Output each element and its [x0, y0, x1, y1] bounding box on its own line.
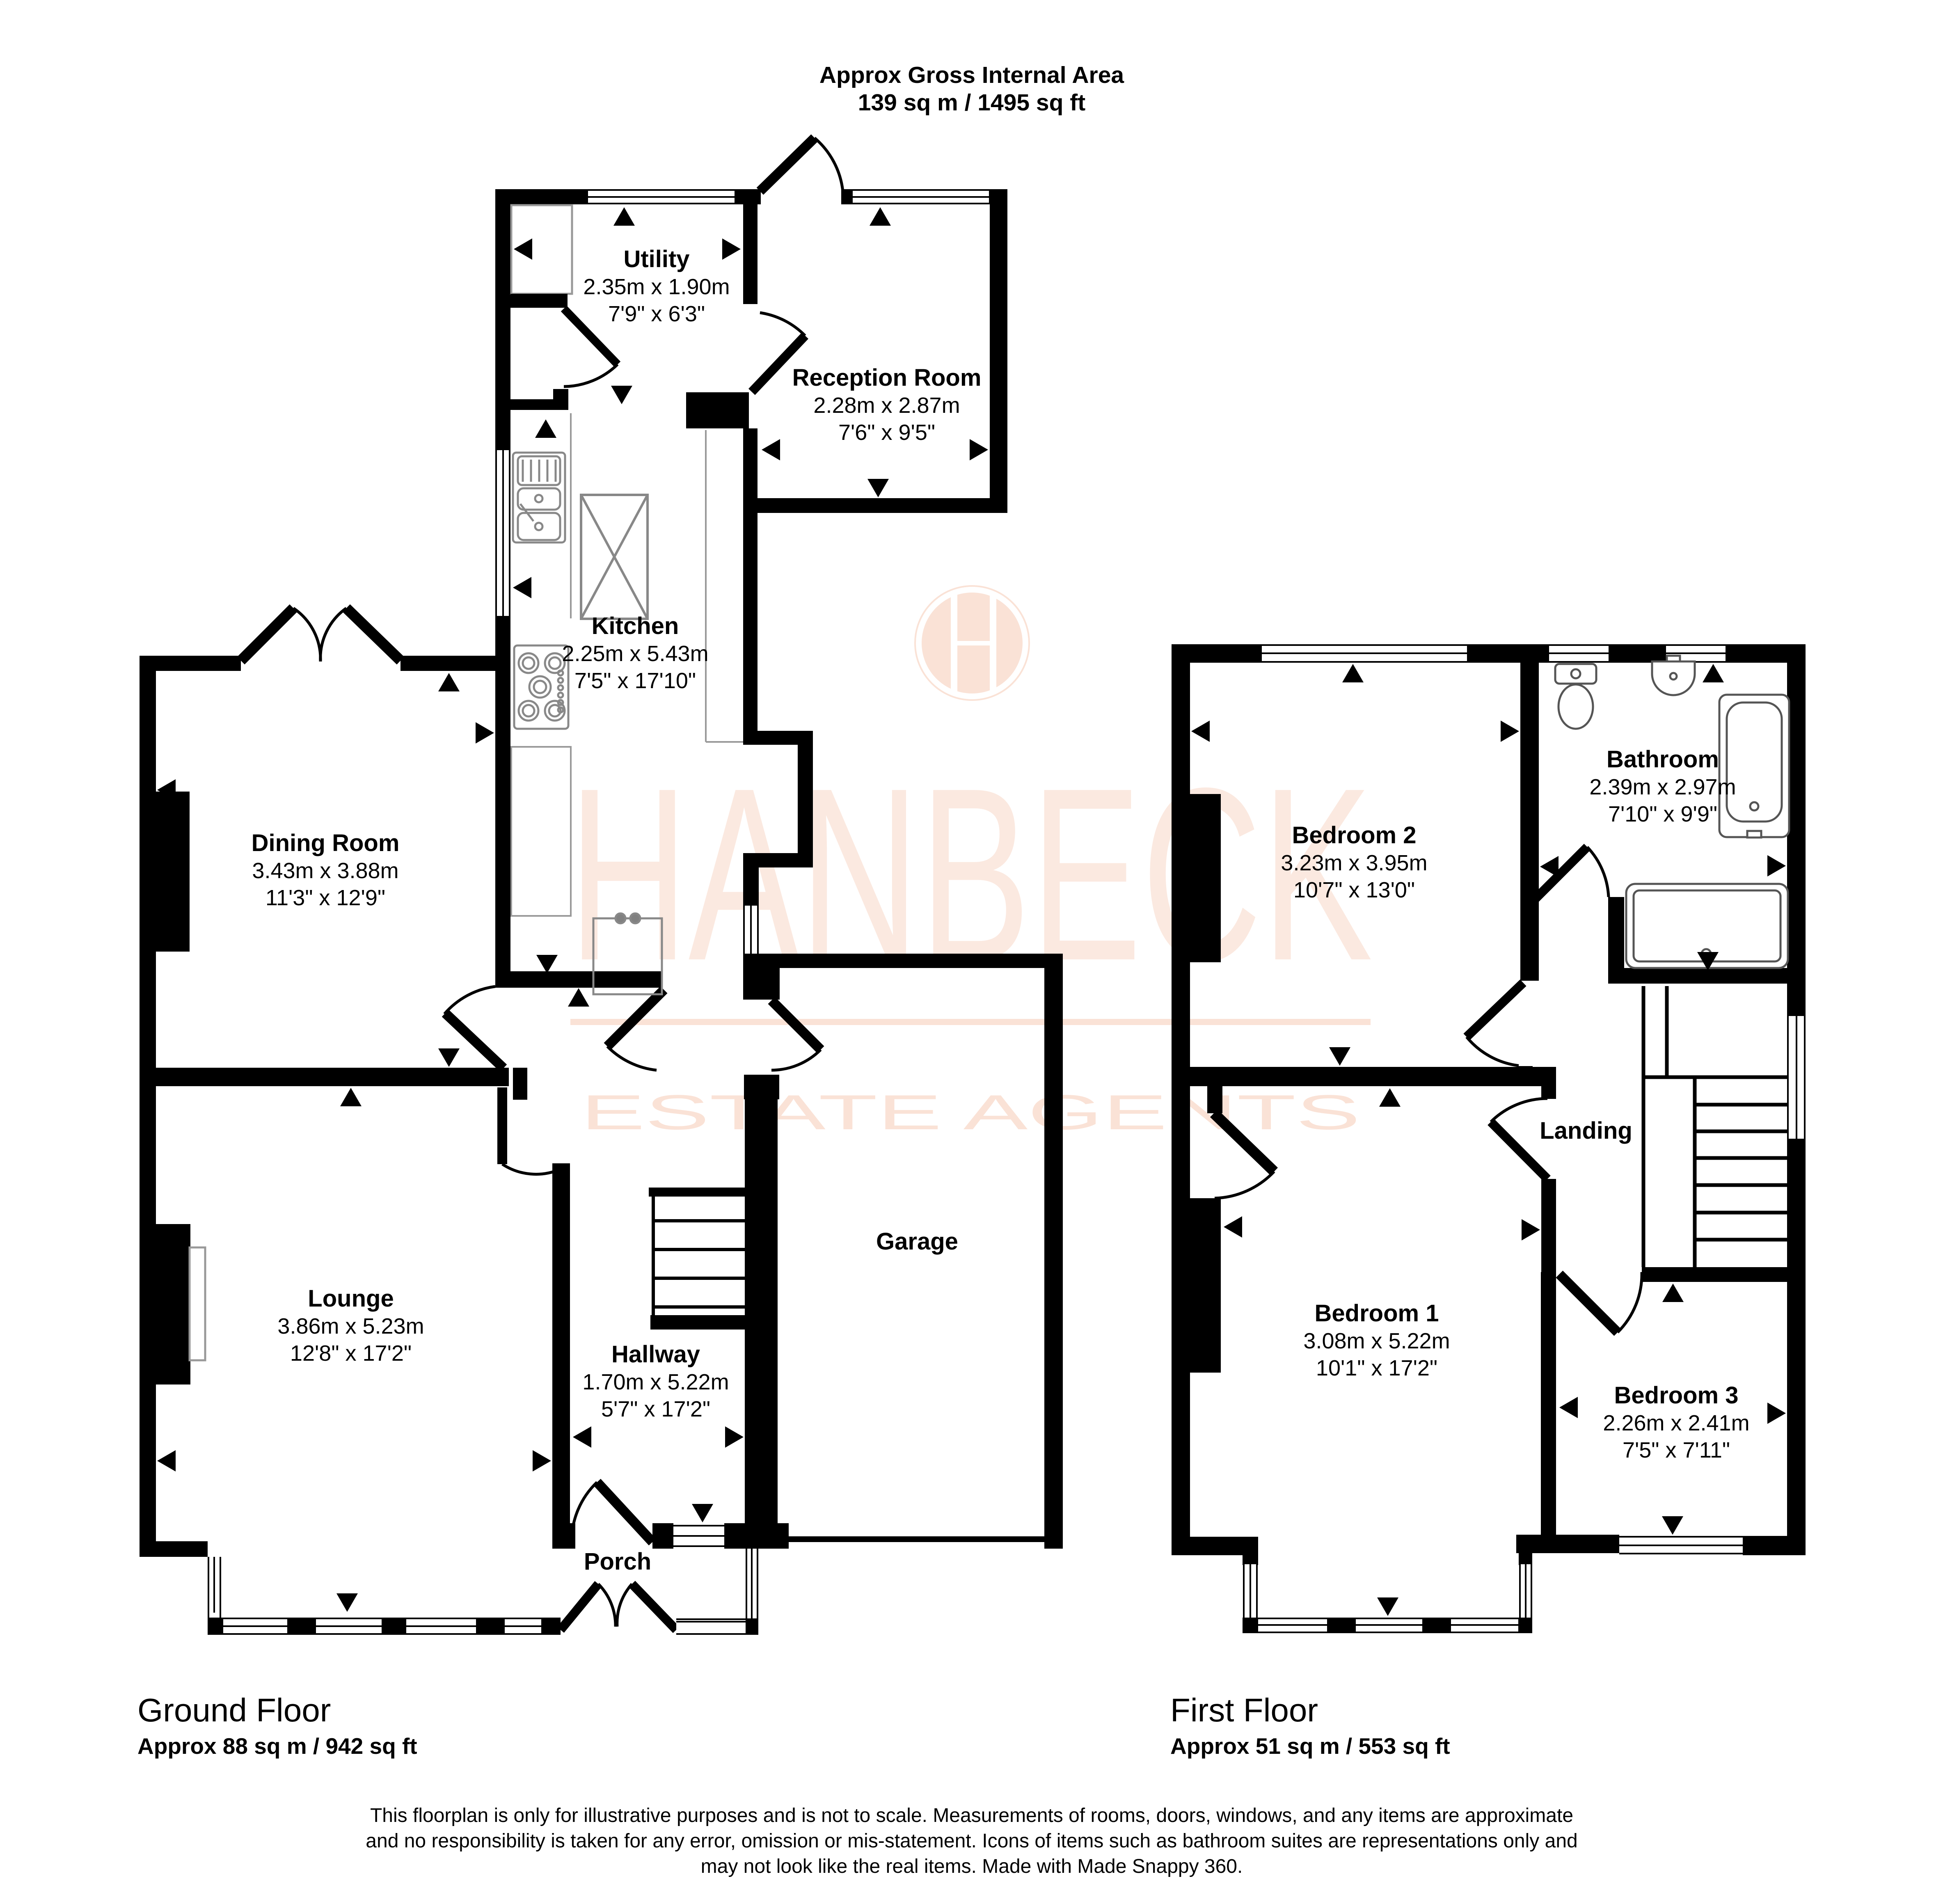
svg-text:Porch: Porch [584, 1548, 651, 1575]
svg-text:7'5" x 17'10": 7'5" x 17'10" [574, 668, 696, 693]
svg-text:7'9" x 6'3": 7'9" x 6'3" [608, 302, 705, 326]
svg-text:Approx 88 sq m / 942 sq ft: Approx 88 sq m / 942 sq ft [137, 1733, 417, 1759]
svg-text:10'7" x 13'0": 10'7" x 13'0" [1293, 878, 1415, 902]
svg-text:11'3" x 12'9": 11'3" x 12'9" [265, 886, 385, 910]
svg-text:12'8" x 17'2": 12'8" x 17'2" [290, 1341, 412, 1366]
svg-text:Bedroom 2: Bedroom 2 [1292, 822, 1417, 849]
svg-text:Landing: Landing [1540, 1117, 1632, 1144]
svg-text:Kitchen: Kitchen [592, 613, 679, 639]
svg-text:and no responsibility is taken: and no responsibility is taken for any e… [366, 1830, 1577, 1852]
svg-text:2.28m x 2.87m: 2.28m x 2.87m [813, 393, 960, 418]
svg-text:7'10" x 9'9": 7'10" x 9'9" [1608, 802, 1717, 826]
svg-text:Bathroom: Bathroom [1607, 746, 1719, 773]
svg-text:Approx 51 sq m / 553 sq ft: Approx 51 sq m / 553 sq ft [1170, 1733, 1450, 1759]
svg-text:Utility: Utility [623, 246, 689, 272]
svg-text:2.26m x 2.41m: 2.26m x 2.41m [1603, 1411, 1749, 1435]
svg-text:Garage: Garage [876, 1228, 958, 1255]
svg-text:7'5" x 7'11": 7'5" x 7'11" [1623, 1438, 1730, 1462]
svg-text:Hallway: Hallway [611, 1341, 700, 1368]
svg-text:HANBECK: HANBECK [568, 737, 1373, 1012]
svg-text:2.39m x 2.97m: 2.39m x 2.97m [1589, 775, 1736, 799]
svg-text:7'6" x 9'5": 7'6" x 9'5" [838, 420, 935, 445]
svg-text:ESTATE AGENTS: ESTATE AGENTS [581, 1085, 1360, 1140]
svg-text:Lounge: Lounge [308, 1285, 394, 1312]
svg-text:3.08m x 5.22m: 3.08m x 5.22m [1303, 1329, 1450, 1353]
svg-text:Ground Floor: Ground Floor [137, 1692, 331, 1728]
svg-text:Reception Room: Reception Room [792, 364, 982, 391]
svg-text:Approx Gross Internal Area: Approx Gross Internal Area [819, 62, 1125, 88]
svg-text:1.70m x 5.22m: 1.70m x 5.22m [582, 1370, 729, 1394]
svg-text:Bedroom 1: Bedroom 1 [1315, 1300, 1439, 1327]
svg-text:First Floor: First Floor [1170, 1692, 1318, 1728]
svg-text:Dining Room: Dining Room [252, 830, 400, 856]
svg-text:2.35m x 1.90m: 2.35m x 1.90m [583, 275, 730, 299]
svg-text:This floorplan is only for ill: This floorplan is only for illustrative … [370, 1805, 1573, 1826]
svg-text:may not look like the real ite: may not look like the real items. Made w… [701, 1856, 1243, 1877]
svg-text:3.86m x 5.23m: 3.86m x 5.23m [277, 1314, 424, 1339]
svg-text:139 sq m / 1495 sq ft: 139 sq m / 1495 sq ft [858, 89, 1085, 116]
svg-text:3.23m x 3.95m: 3.23m x 3.95m [1281, 851, 1427, 875]
svg-text:3.43m x 3.88m: 3.43m x 3.88m [252, 858, 398, 883]
svg-text:2.25m x 5.43m: 2.25m x 5.43m [562, 641, 708, 666]
svg-text:5'7" x 17'2": 5'7" x 17'2" [601, 1397, 710, 1421]
svg-text:10'1" x 17'2": 10'1" x 17'2" [1316, 1356, 1437, 1380]
svg-text:Bedroom 3: Bedroom 3 [1614, 1382, 1739, 1409]
